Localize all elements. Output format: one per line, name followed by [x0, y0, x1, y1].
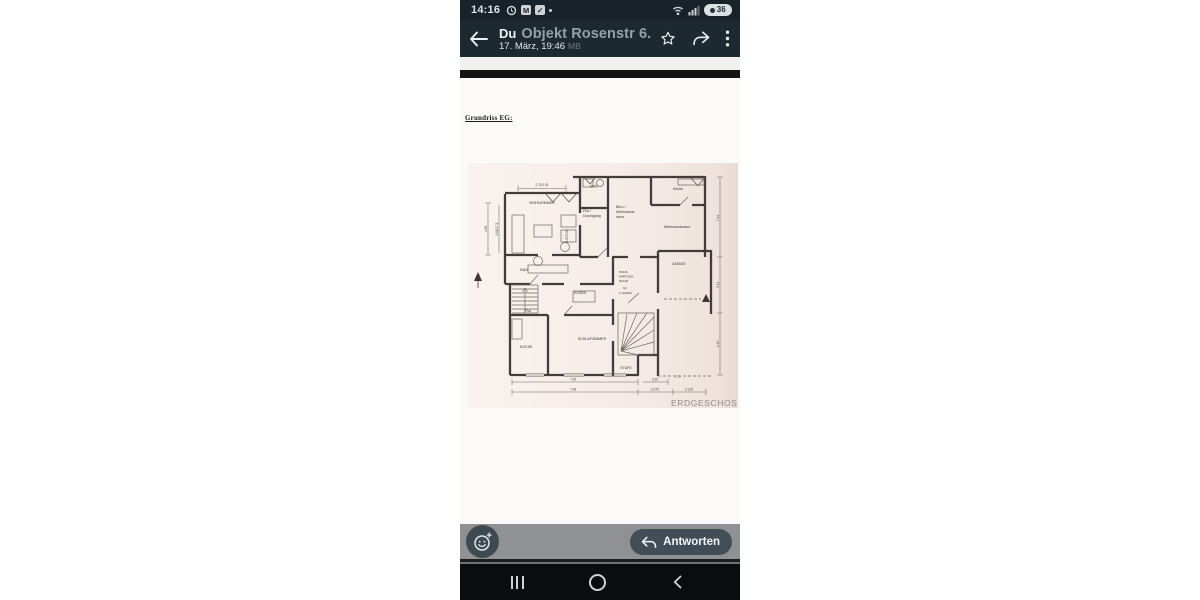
room-label-bad-low: BAD [520, 268, 528, 272]
system-nav-bar [460, 564, 740, 600]
room-label-bad-top: BAD [590, 185, 598, 189]
back-button[interactable] [657, 564, 697, 600]
dim-bottom-6: 3.125 [685, 388, 693, 392]
room-label-buero-2: Mehrzweck- [616, 210, 636, 214]
reply-button[interactable]: Antworten [630, 529, 732, 555]
scan-sheet [468, 163, 738, 408]
dim-bottom-3: 17,5 [675, 375, 681, 379]
dim-top: 2.71/2.51 [535, 183, 549, 187]
dim-mid: 4.07/3.89 [565, 229, 569, 243]
dim-bottom-1: 7.99 [570, 378, 576, 382]
page-gap-strip [460, 57, 740, 70]
dim-right-2: 3.41 [716, 282, 720, 288]
room-label-garage: GARAGE [672, 262, 686, 266]
room-label-flur-2: Durchgang [583, 214, 601, 218]
room-label-essen: ESSEN [574, 291, 587, 295]
overflow-menu-button[interactable] [725, 30, 730, 47]
room-label-kueche-top: Küche [673, 187, 683, 191]
page-separator-band [460, 70, 740, 78]
room-label-hw-1: HAUS- [619, 270, 629, 274]
reply-arrow-icon [640, 535, 657, 550]
media-action-bar: Antworten [460, 524, 740, 559]
check-notification-icon: ✓ [535, 5, 545, 15]
page-title: Grundriss EG: [465, 114, 513, 122]
back-chevron-icon [673, 575, 682, 589]
sender-name: Du [499, 26, 516, 41]
back-arrow-icon[interactable] [469, 31, 488, 47]
floorplan-image: WOHNZIMMER BAD Küche Flur / Durchgang Bü… [468, 163, 738, 408]
battery-indicator: 36 [704, 4, 732, 16]
recents-icon [511, 576, 524, 589]
document-title: Objekt Rosenstr 6.pdf [521, 26, 651, 42]
room-label-kueche-low: KÜCHE [520, 345, 533, 349]
recents-button[interactable] [497, 564, 537, 600]
gmail-notification-icon: M [521, 5, 531, 15]
room-label-hw-3: RAUM [619, 279, 629, 283]
dim-bottom-2: 3.25 [652, 378, 658, 382]
phone-screen: 14:16 M ✓ [460, 0, 740, 600]
add-reaction-button[interactable] [466, 525, 499, 558]
room-label-flur-low: Flur [525, 309, 532, 313]
pdf-page: Grundriss EG: [460, 78, 740, 524]
room-label-wohnzimmer: WOHNZIMMER [529, 201, 555, 205]
dim-bottom-4: 7.98 [570, 388, 576, 392]
notification-update-icon [506, 5, 517, 16]
room-label-mehrzweckraum: Mehrzweckraum [664, 225, 690, 229]
forward-button[interactable] [691, 30, 711, 47]
message-timestamp: 17. März, 19:46 [499, 41, 565, 52]
app-bar: Du Objekt Rosenstr 6.pdf 17. März, 19:46… [460, 20, 740, 57]
floorplan-svg: WOHNZIMMER BAD Küche Flur / Durchgang Bü… [468, 163, 738, 408]
room-label-flur-1: Flur / [583, 209, 591, 213]
room-label-buero-1: Büro / [616, 205, 626, 209]
star-button[interactable] [659, 30, 677, 48]
media-title-block[interactable]: Du Objekt Rosenstr 6.pdf 17. März, 19:46… [499, 26, 651, 52]
home-icon [589, 574, 606, 591]
room-label-hw-2: WIRTSCH. [619, 275, 634, 279]
reply-button-label: Antworten [663, 536, 720, 548]
room-label-schlafzimmer: SCHLAFZIMMER [578, 337, 607, 341]
clock-text: 14:16 [471, 4, 500, 16]
cellular-signal-icon [688, 5, 700, 16]
more-notifications-dot-icon [549, 9, 552, 12]
room-label-buero-3: raum [616, 215, 624, 219]
dim-bottom-5: 3.075 [651, 388, 659, 392]
room-label-stufe: STUFE [620, 366, 632, 370]
home-button[interactable] [577, 564, 617, 600]
status-bar: 14:16 M ✓ [460, 0, 740, 20]
screenshot-canvas: 14:16 M ✓ [0, 0, 1200, 600]
dim-right-3: 2.43 [716, 341, 720, 347]
file-meta-ghost: MB [568, 41, 581, 51]
dim-right-1: 7.44 [716, 215, 720, 221]
wifi-icon [672, 5, 684, 16]
room-label-hw-4: für [623, 286, 627, 290]
dim-left-inner: 1.81/1.71 [495, 222, 499, 236]
emoji-plus-icon [473, 532, 493, 552]
battery-percent: 36 [717, 6, 726, 14]
dim-left-outer: 4.38 [484, 226, 488, 232]
battery-saver-icon [710, 8, 715, 13]
plan-title-erdgeschoss: ERDGESCHOSS [671, 398, 738, 408]
room-label-hw-5: 1.OG/DG [619, 291, 632, 295]
